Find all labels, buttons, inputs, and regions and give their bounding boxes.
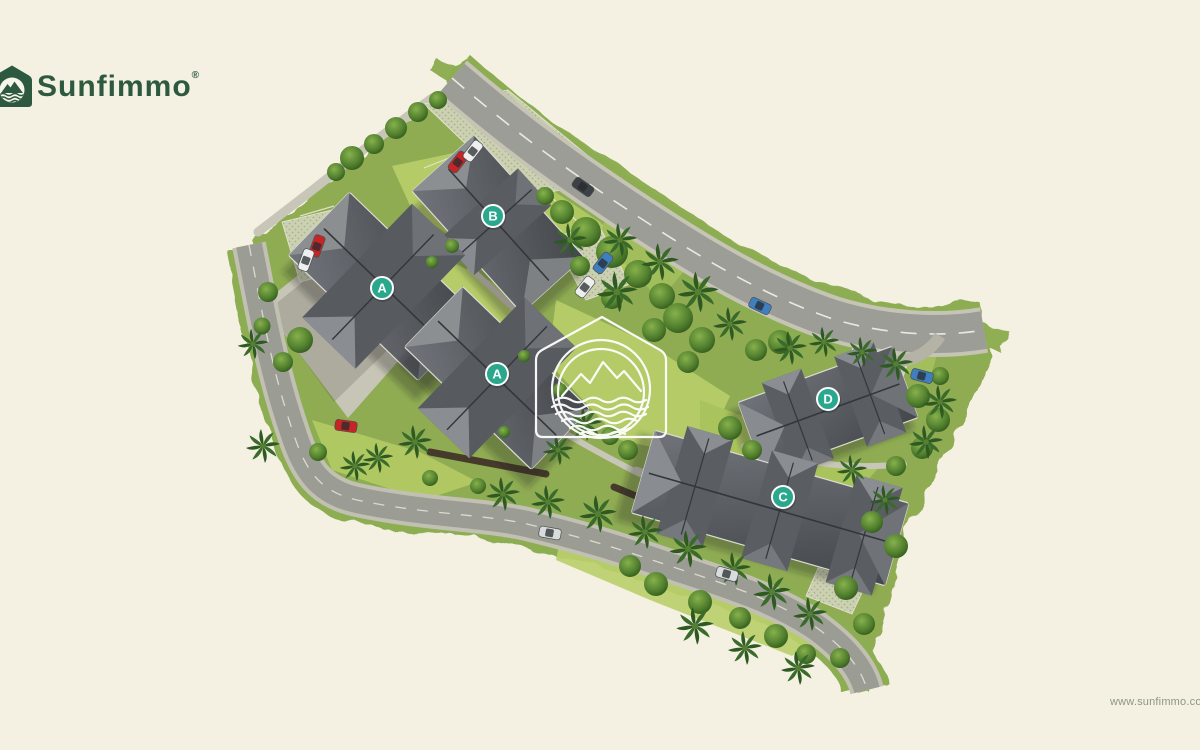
bush-tree (445, 239, 459, 253)
building-marker-label: B (488, 209, 497, 224)
bush-tree (287, 327, 313, 353)
bush-tree (619, 555, 641, 577)
bush-tree (677, 351, 699, 373)
building-marker-c: C (771, 486, 796, 511)
bush-tree (536, 187, 554, 205)
bush-tree (618, 440, 638, 460)
bush-tree (327, 163, 345, 181)
bush-tree (254, 318, 271, 335)
bush-tree (364, 134, 384, 154)
bush-tree (429, 91, 447, 109)
bush-tree (258, 282, 278, 302)
bush-tree (764, 624, 788, 648)
building-marker-label: C (778, 490, 788, 505)
building-marker-label: A (492, 367, 502, 382)
bush-tree (340, 146, 364, 170)
bush-tree (853, 613, 875, 635)
masterplan-canvas: A B A C D (0, 0, 1200, 750)
bush-tree (309, 443, 327, 461)
building-marker-label: A (377, 281, 387, 296)
bush-tree (834, 576, 858, 600)
bush-tree (385, 117, 407, 139)
bush-tree (729, 607, 751, 629)
bush-tree (886, 456, 906, 476)
bush-tree (796, 644, 816, 664)
brand-logo-house-mountains-waves-icon (0, 64, 33, 110)
building-marker-d: D (816, 388, 841, 413)
registered-mark: ® (192, 70, 199, 81)
bush-tree (745, 339, 767, 361)
bush-tree (570, 256, 590, 276)
bush-tree (861, 511, 883, 533)
bush-tree (273, 352, 293, 372)
bush-tree (663, 303, 693, 333)
building-marker-label: D (823, 392, 832, 407)
bush-tree (470, 478, 486, 494)
building-marker-a: A (370, 277, 395, 302)
bush-tree (718, 416, 742, 440)
bush-tree (742, 440, 762, 460)
bush-tree (830, 648, 850, 668)
building-marker-b: B (481, 205, 506, 230)
bush-tree (422, 470, 438, 486)
bush-tree (926, 408, 950, 432)
brand-name: Sunfimmo® (37, 71, 199, 102)
bush-tree (884, 534, 908, 558)
bush-tree (550, 200, 574, 224)
bush-tree (498, 426, 510, 438)
bush-tree (644, 572, 668, 596)
bush-tree (553, 383, 567, 397)
bush-tree (408, 102, 428, 122)
bush-tree (689, 327, 715, 353)
bush-tree (642, 318, 666, 342)
website-url: www.sunfimmo.com (1110, 696, 1200, 708)
bush-tree (426, 256, 438, 268)
brand-logo: Sunfimmo® (0, 0, 260, 130)
bush-tree (518, 350, 530, 362)
building-marker-a2: A (485, 363, 510, 388)
brand-name-text: Sunfimmo (37, 70, 192, 103)
